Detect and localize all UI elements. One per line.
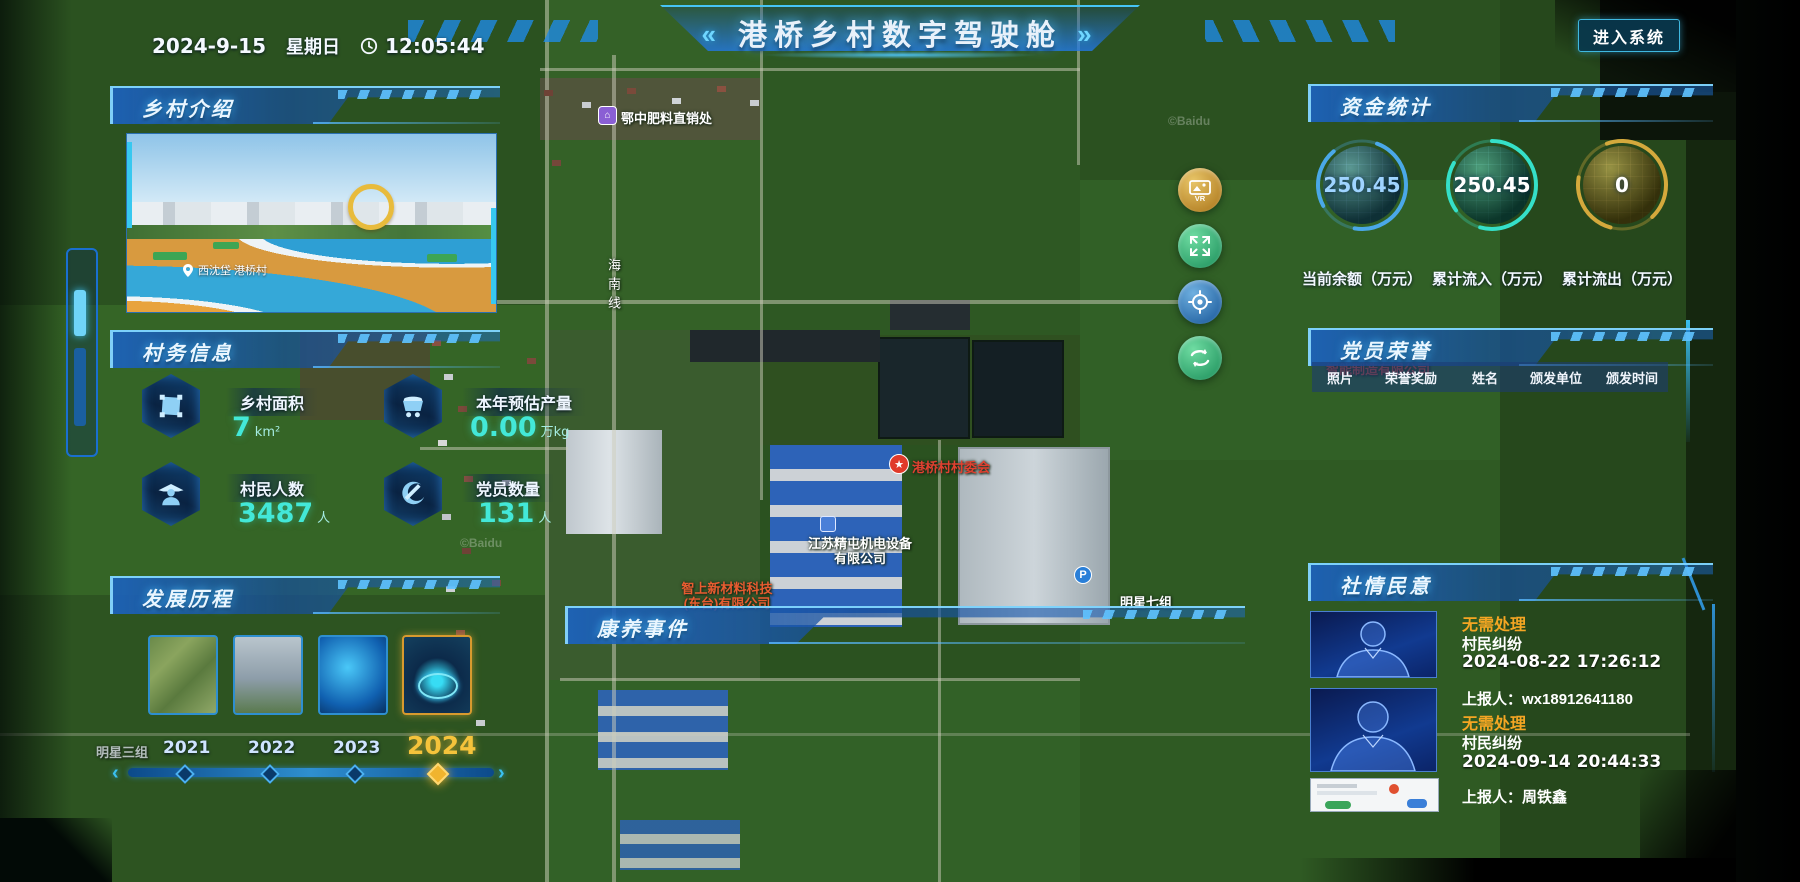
header-dash-decor <box>1083 610 1233 619</box>
swap-arrows-icon <box>1187 345 1213 371</box>
honor-col-name: 姓名 <box>1454 368 1516 387</box>
datetime-bar: 2024-9-15 星期日 12:05:44 <box>152 33 485 59</box>
panel-sentiment-header: 社情民意 <box>1308 563 1713 601</box>
map-road <box>612 55 616 882</box>
stat-value-party: 131人 <box>478 498 551 529</box>
map-road <box>938 440 941 882</box>
honor-col-award: 荣誉奖励 <box>1368 368 1454 387</box>
avatar-wireframe-icon <box>1311 689 1436 771</box>
sentiment-1-status: 无需处理 <box>1462 611 1526 635</box>
right-frame-accent <box>1712 604 1715 772</box>
photo-corner-accent <box>491 208 497 304</box>
stat-value-area: 7km² <box>232 412 280 443</box>
sentiment-1-type: 村民纠纷 <box>1462 633 1522 654</box>
gauge-balance-label: 当前余额（万元） <box>1287 268 1437 289</box>
stat-party-number: 131 <box>478 498 534 529</box>
svg-text:VR: VR <box>1195 194 1206 203</box>
villager-glyph <box>156 479 186 509</box>
sentiment-item-1-image[interactable] <box>1310 611 1437 678</box>
panel-village-intro-header: 乡村介绍 <box>110 86 500 124</box>
fullscreen-button[interactable] <box>1178 224 1222 268</box>
year-2023[interactable]: 2023 <box>333 738 380 758</box>
stat-area-number: 7 <box>232 412 251 443</box>
time-text: 12:05:44 <box>385 34 485 58</box>
photo-caption-text: 西沈垈 港桥村 <box>198 262 267 278</box>
area-glyph <box>156 391 186 421</box>
map-label-road: 海南线 <box>604 258 623 315</box>
map-field <box>1080 180 1500 460</box>
panel-wellness-header: 康养事件 <box>565 606 1245 644</box>
map-label-group3: 明星三组 <box>96 742 148 761</box>
enter-system-button[interactable]: 进入系统 <box>1578 19 1680 52</box>
crosshair-icon <box>1187 289 1213 315</box>
stat-value-yield: 0.00万kg <box>470 412 569 443</box>
committee-pin-icon[interactable]: ★ <box>889 454 909 474</box>
header-dash-decor <box>1551 567 1701 576</box>
sentiment-item-3-image[interactable] <box>1310 778 1439 812</box>
cart-glyph <box>398 391 428 421</box>
baidu-watermark: ©Baidu <box>1168 114 1210 128</box>
panel-title-party-honor: 党员荣誉 <box>1340 335 1432 364</box>
panel-title-development: 发展历程 <box>142 583 234 612</box>
right-edge-strip <box>1736 0 1800 882</box>
thumbnail-2024[interactable] <box>402 635 472 715</box>
refresh-button[interactable] <box>1178 336 1222 380</box>
title-row: « 港桥乡村数字驾驶舱 » <box>640 12 1160 54</box>
dashboard-screen: ⌂ 鄂中肥料直销处 海南线 ★ 港桥村村委会 江苏精屯机电设备 有限公司 智上新… <box>0 0 1800 882</box>
shot-red-dot <box>1389 784 1399 794</box>
village-photo[interactable]: 西沈垈 港桥村 <box>126 133 497 313</box>
panel-title-wellness: 康养事件 <box>597 613 689 642</box>
bottom-right-strip <box>1300 858 1800 882</box>
thumbnail-2022[interactable] <box>233 635 303 715</box>
honor-table-header: 照片 荣誉奖励 姓名 颁发单位 颁发时间 <box>1312 362 1668 392</box>
sentiment-2-time: 2024-09-14 20:44:33 <box>1462 752 1661 772</box>
stat-area-unit: km² <box>255 425 280 440</box>
party-emblem-glyph <box>398 479 428 509</box>
company2-line1: 智上新材料科技 <box>681 581 772 596</box>
header-underline <box>1519 120 1713 122</box>
photo-corner-accent <box>126 142 132 228</box>
panel-funds-header: 资金统计 <box>1308 84 1713 122</box>
shot-line <box>1317 791 1377 795</box>
location-pin-icon <box>183 264 193 277</box>
year-2024[interactable]: 2024 <box>407 731 477 760</box>
gauge-balance-value: 250.45 <box>1314 137 1410 233</box>
locate-button[interactable] <box>1178 280 1222 324</box>
parking-icon[interactable]: P <box>1074 566 1092 584</box>
gauge-outflow-label: 累计流出（万元） <box>1547 268 1697 289</box>
baidu-watermark: ©Baidu <box>460 536 502 550</box>
map-blue-roofs <box>620 820 740 870</box>
sentiment-item-2-image[interactable] <box>1310 688 1437 772</box>
header-dash-decor <box>1551 88 1701 97</box>
year-2021[interactable]: 2021 <box>163 738 210 758</box>
panel-title-village-info: 村务信息 <box>142 337 234 366</box>
map-field <box>1080 460 1500 882</box>
honor-col-issuer: 颁发单位 <box>1516 368 1596 387</box>
stat-value-villagers: 3487人 <box>238 498 330 529</box>
left-frame-cyan-bar <box>74 290 86 336</box>
header-dash-decor <box>338 580 488 589</box>
shot-green-pill <box>1325 801 1351 809</box>
photo-ring-sculpture <box>348 184 394 230</box>
sentiment-1-time: 2024-08-22 17:26:12 <box>1462 652 1661 672</box>
honor-col-date: 颁发时间 <box>1596 368 1668 387</box>
photo-bench <box>153 252 187 260</box>
time-group: 12:05:44 <box>360 34 485 58</box>
gauge-inflow-value: 250.45 <box>1444 137 1540 233</box>
stat-yield-number: 0.00 <box>470 412 537 443</box>
gauge-outflow-value: 0 <box>1574 137 1670 233</box>
vr-image-icon: VR <box>1187 177 1213 203</box>
timeline-next-icon[interactable]: › <box>498 768 505 778</box>
sentiment-1-reporter: 上报人：wx18912641180 <box>1462 688 1633 709</box>
photo-bench <box>427 254 457 262</box>
map-label-fertilizer[interactable]: 鄂中肥料直销处 <box>621 108 712 127</box>
panel-party-honor-header: 党员荣誉 <box>1308 328 1713 366</box>
map-road <box>420 300 1180 304</box>
map-road <box>560 678 1080 681</box>
stat-villagers-number: 3487 <box>238 498 313 529</box>
sentiment-2-type: 村民纠纷 <box>1462 732 1522 753</box>
weekday-text: 星期日 <box>286 33 340 59</box>
avatar-wireframe-icon <box>1311 612 1436 677</box>
gauge-balance: 250.45 <box>1314 137 1410 233</box>
stat-yield-unit: 万kg <box>541 425 570 440</box>
map-blue-roofs <box>598 690 728 770</box>
shop-pin-icon[interactable]: ⌂ <box>598 106 617 125</box>
gauge-inflow-label: 累计流入（万元） <box>1417 268 1567 289</box>
sentiment-2-reporter: 上报人：周铁鑫 <box>1462 786 1567 807</box>
stat-party-unit: 人 <box>538 511 551 526</box>
left-edge-shade <box>0 0 72 882</box>
panel-development-header: 发展历程 <box>110 576 500 614</box>
map-road <box>760 0 763 500</box>
header-dash-decor <box>338 90 488 99</box>
photo-bench <box>213 242 239 249</box>
panel-title-sentiment: 社情民意 <box>1340 570 1432 599</box>
bottom-left-corner <box>0 818 112 882</box>
company1-line1: 江苏精屯机电设备 <box>808 536 912 551</box>
stat-villagers-unit: 人 <box>317 511 330 526</box>
left-frame-blue-bar <box>74 348 86 426</box>
clock-icon <box>360 37 378 55</box>
sentiment-2-status: 无需处理 <box>1462 710 1526 734</box>
map-dark-buildings <box>690 330 880 362</box>
map-road <box>540 68 1080 71</box>
company-pin-icon[interactable] <box>820 516 836 532</box>
vr-panorama-button[interactable]: VR <box>1178 168 1222 212</box>
gauge-inflow: 250.45 <box>1444 137 1540 233</box>
panel-village-info-header: 村务信息 <box>110 330 500 368</box>
year-2022[interactable]: 2022 <box>248 738 295 758</box>
main-title: « 港桥乡村数字驾驶舱 » <box>640 3 1160 55</box>
left-chevron-icon: « <box>701 19 722 49</box>
company1-line2: 有限公司 <box>834 551 886 566</box>
page-title: 港桥乡村数字驾驶舱 <box>738 20 1062 52</box>
photo-sky <box>127 134 496 209</box>
header-underline <box>313 366 500 368</box>
map-label-committee[interactable]: 港桥村村委会 <box>912 457 990 476</box>
header-underline <box>313 122 500 124</box>
shot-blue-pill <box>1407 799 1427 808</box>
timeline-prev-icon[interactable]: ‹ <box>112 768 119 778</box>
photo-caption: 西沈垈 港桥村 <box>183 262 267 278</box>
header-underline <box>1519 599 1713 601</box>
map-pond <box>972 340 1064 438</box>
map-pond <box>878 337 970 439</box>
gauge-outflow: 0 <box>1574 137 1670 233</box>
expand-arrows-icon <box>1188 234 1212 258</box>
header-underline <box>769 642 1245 644</box>
date-text: 2024-9-15 <box>152 34 266 58</box>
header-dash-decor <box>1551 332 1701 341</box>
panel-title-village-intro: 乡村介绍 <box>142 93 234 122</box>
map-label-company1[interactable]: 江苏精屯机电设备 有限公司 <box>788 536 932 566</box>
thumbnail-2021[interactable] <box>148 635 218 715</box>
honor-col-photo: 照片 <box>1312 368 1368 387</box>
map-dark-buildings <box>890 300 970 330</box>
header-dash-decor <box>338 334 488 343</box>
panel-title-funds: 资金统计 <box>1340 91 1432 120</box>
header-underline <box>313 612 500 614</box>
header-dashes-right <box>1205 20 1395 42</box>
right-chevron-icon: » <box>1077 19 1098 49</box>
map-road <box>420 447 568 450</box>
thumbnail-2023[interactable] <box>318 635 388 715</box>
shot-line <box>1317 784 1357 788</box>
